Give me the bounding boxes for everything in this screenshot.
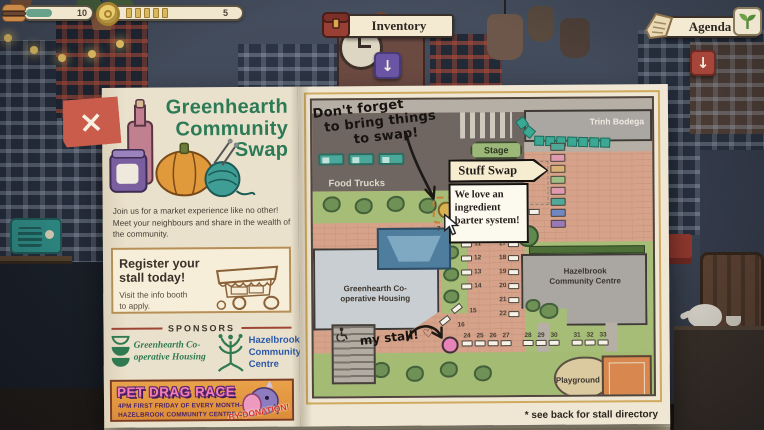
- bush-icon: [355, 198, 373, 214]
- stall-box: [461, 255, 472, 261]
- stall: 25: [475, 332, 486, 346]
- coin-ticks: [126, 8, 168, 18]
- energy-value: 10: [77, 8, 87, 18]
- stall-box: [461, 269, 472, 275]
- stall-number: 31: [573, 332, 580, 339]
- stall-number: 16: [457, 321, 464, 328]
- colored-stall: [551, 209, 566, 217]
- burger-icon: [2, 4, 26, 24]
- stall-number: 13: [474, 268, 481, 275]
- stall: 31: [572, 332, 583, 346]
- string-light-icon: [116, 40, 124, 48]
- stall: 13: [461, 268, 481, 275]
- register-heading: Register your stall today!: [119, 256, 219, 285]
- close-icon: ×: [77, 104, 104, 140]
- stall: 21: [499, 296, 519, 303]
- stall: 12: [461, 254, 481, 261]
- stall: 32: [585, 332, 596, 346]
- stall-number: 27: [502, 332, 509, 339]
- pantry-illustration: [106, 91, 257, 204]
- inventory-button[interactable]: Inventory ↓: [320, 4, 456, 84]
- trinh-bodega-label: Trinh Bodega: [554, 116, 644, 127]
- stall-number: 18: [499, 254, 506, 261]
- stall: 33: [598, 331, 609, 345]
- bush-icon: [525, 299, 540, 312]
- sponsors-heading: SPONSORS: [168, 323, 235, 333]
- bush-icon: [474, 365, 492, 381]
- colored-stall-column: [550, 143, 566, 228]
- stall-box: [508, 283, 519, 289]
- stall-box: [523, 340, 534, 346]
- stall-number: 12: [474, 254, 481, 261]
- stall-cart-illustration: [209, 253, 285, 312]
- greenhearth-housing-label: Greenhearth Co-operative Housing: [327, 284, 423, 304]
- colored-stall: [550, 165, 565, 173]
- housing-skylight: [387, 236, 441, 262]
- radio-icon: [10, 218, 62, 254]
- cursor-pointer-icon: [443, 213, 461, 235]
- game-scene: 10 5 Inventory ↓ Agenda ↓: [0, 0, 764, 430]
- stall-box: [549, 340, 560, 346]
- coin-tick: [135, 8, 141, 18]
- stall: 27: [501, 332, 512, 346]
- stage-label: Stage: [484, 145, 509, 155]
- divider-line: [111, 328, 162, 330]
- map-footnote: * see back for stall directory: [525, 409, 658, 421]
- stall-number: 14: [474, 282, 481, 289]
- colored-stall: [551, 198, 566, 206]
- stall-number: 26: [489, 332, 496, 339]
- stall-number: 24: [463, 332, 470, 339]
- stall-row-group: 24252627: [462, 332, 512, 346]
- food-truck-icon: [318, 153, 344, 165]
- colored-stall: [550, 154, 565, 162]
- sponsor-greenhearth: Greenhearth Co-operative Housing: [112, 335, 216, 369]
- coin-tick: [144, 8, 150, 18]
- hazelbrook-tree-icon: [216, 333, 246, 373]
- coin-tick: [126, 8, 132, 18]
- cabinet: [674, 326, 764, 430]
- stall: 29: [536, 332, 547, 346]
- bush-icon: [443, 267, 459, 281]
- energy-bar-fill: [26, 9, 52, 17]
- stall: 30: [549, 332, 560, 346]
- stall-row-group: 282930: [523, 332, 560, 346]
- coin-value: 5: [223, 8, 228, 18]
- colored-stall: [550, 176, 565, 184]
- stall: 19: [499, 268, 519, 275]
- stall-number: 28: [524, 332, 531, 339]
- arrow-down-icon: ↓: [697, 54, 710, 72]
- bush-icon: [539, 303, 558, 319]
- energy-meter: 10: [2, 5, 94, 23]
- stall-number: 29: [537, 332, 544, 339]
- stall-box: [461, 283, 472, 289]
- intro-text: Join us for a market experience like no …: [113, 205, 291, 241]
- tooltip-title-ribbon: Stuff Swap: [448, 159, 548, 183]
- inventory-banner[interactable]: Inventory: [344, 14, 454, 38]
- stall-row-group: 313233: [572, 331, 609, 345]
- inventory-shortcut-key[interactable]: ↓: [374, 52, 401, 79]
- pet-race-title: PET DRAG RACE: [117, 384, 235, 400]
- food-truck-icon: [378, 153, 404, 165]
- event-map: Trinh Bodega Food Trucks Stage: [310, 96, 656, 398]
- close-button[interactable]: ×: [61, 96, 122, 147]
- string-light-icon: [58, 54, 66, 62]
- stall-column-left: 11121314: [461, 240, 482, 289]
- stall-number: 15: [469, 307, 476, 314]
- colored-stall: [551, 187, 566, 195]
- housing-roof: [377, 228, 451, 271]
- booklet-right-page: Trinh Bodega Food Trucks Stage: [298, 84, 670, 427]
- stall-box: [509, 297, 520, 303]
- chest-icon: [320, 6, 352, 42]
- stall: 20: [499, 282, 519, 289]
- food-trucks-label: Food Trucks: [328, 178, 385, 190]
- plant-button[interactable]: [733, 7, 762, 36]
- my-stall-marker: [442, 336, 459, 353]
- divider-line: [241, 327, 292, 329]
- coin-tick: [153, 8, 159, 18]
- table: [0, 388, 112, 430]
- stall-number: 19: [499, 268, 506, 275]
- sprout-icon: [735, 9, 760, 34]
- hazelbrook-label: Hazelbrook Community Centre: [541, 266, 629, 286]
- stall-box: [536, 340, 547, 346]
- community-swap-booklet: × Greenhearth Community Swap: [102, 84, 670, 428]
- coin-tick: [162, 8, 168, 18]
- food-truck-icon: [348, 153, 374, 165]
- hanging-bag-icon: [528, 6, 554, 42]
- agenda-shortcut-key[interactable]: ↓: [690, 50, 716, 76]
- coin-icon: [96, 2, 120, 26]
- hanging-bag-icon: [560, 18, 590, 58]
- stall-number: 21: [499, 296, 506, 303]
- stall-box: [509, 311, 520, 317]
- map-frame: Trinh Bodega Food Trucks Stage: [304, 90, 662, 404]
- bush-icon: [443, 289, 459, 303]
- stall: 28: [523, 332, 534, 346]
- stall: 14: [461, 282, 481, 289]
- bush-icon: [387, 196, 405, 212]
- greenhearth-logo-icon: [112, 336, 130, 369]
- wheelchair-icon: [335, 327, 348, 341]
- playground-label: Playground: [546, 375, 610, 385]
- string-light-icon: [4, 34, 12, 42]
- bush-icon: [323, 196, 341, 212]
- stall-box: [572, 340, 583, 346]
- sponsor-greenhearth-label: Greenhearth Co-operative Housing: [134, 340, 216, 364]
- scroll-icon: [642, 10, 676, 42]
- stall-box: [501, 340, 512, 346]
- stall: 24: [462, 332, 473, 346]
- stall: 22: [499, 310, 519, 317]
- stall-number: 22: [499, 310, 506, 317]
- pet-race-line1: 4PM FIRST FRIDAY OF EVERY MONTH—: [118, 402, 246, 410]
- arrow-down-icon: ↓: [381, 57, 394, 75]
- crosswalk: [460, 112, 512, 138]
- string-light-icon: [30, 46, 38, 54]
- register-box: Register your stall today! Visit the inf…: [111, 247, 291, 314]
- colored-stall: [551, 220, 566, 228]
- coin-bar: 5: [108, 5, 244, 21]
- stall-number: 30: [550, 332, 557, 339]
- awning-row: [534, 136, 610, 148]
- bush-icon: [440, 362, 458, 378]
- stall: [439, 315, 451, 327]
- register-body: Visit the info booth to apply.: [119, 289, 193, 311]
- stage-marker: Stage: [470, 141, 522, 159]
- stall-number: 33: [599, 331, 606, 338]
- stall-column-right: 171819202122: [499, 240, 520, 317]
- stall-box: [598, 339, 609, 345]
- pet-drag-race-banner: PET DRAG RACE 4PM FIRST FRIDAY OF EVERY …: [110, 379, 294, 422]
- colored-stall: [550, 143, 565, 151]
- hanging-bag-icon: [487, 14, 523, 60]
- stall: 26: [488, 332, 499, 346]
- stall: [529, 209, 540, 215]
- bush-icon: [406, 366, 424, 382]
- stall-number: 25: [476, 332, 483, 339]
- teapot-icon: [688, 304, 722, 328]
- stall-box: [475, 340, 486, 346]
- string-light-icon: [88, 50, 96, 58]
- stall-number: 7: [437, 226, 441, 233]
- tooltip-title: Stuff Swap: [458, 163, 517, 178]
- stall: 18: [499, 254, 519, 261]
- energy-bar: 10: [22, 5, 94, 21]
- stall-box: [462, 340, 473, 346]
- stall-box: [508, 255, 519, 261]
- stall-number: 32: [586, 332, 593, 339]
- agenda-label: Agenda: [689, 19, 732, 35]
- stall-box: [508, 269, 519, 275]
- hedge: [529, 245, 645, 254]
- stall-box: [488, 340, 499, 346]
- teacup-icon: [726, 316, 741, 326]
- booklet-left-page: Greenhearth Community Swap: [102, 87, 300, 428]
- coin-meter: 5: [96, 5, 246, 23]
- stall-box: [585, 340, 596, 346]
- stall-number: 20: [499, 282, 506, 289]
- shelf: [0, 256, 72, 264]
- inventory-label: Inventory: [372, 18, 427, 34]
